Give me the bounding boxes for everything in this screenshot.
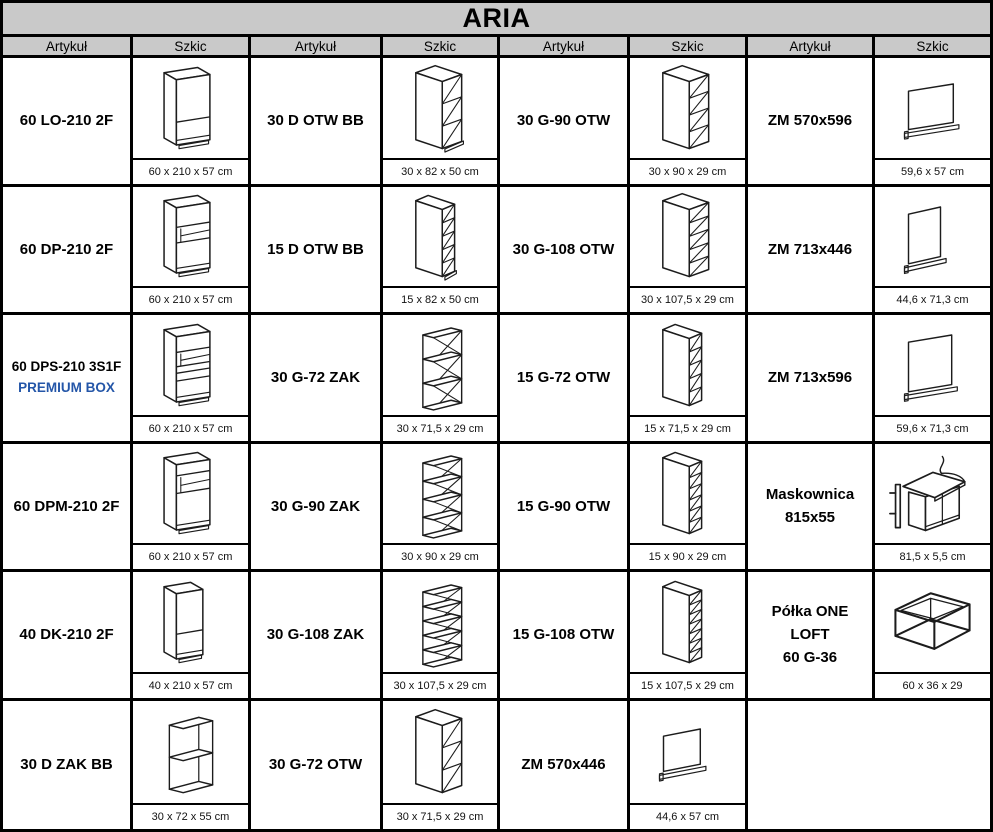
- dimension-label: 15 x 71,5 x 29 cm: [630, 415, 745, 441]
- article-cell: 60 DPM-210 2F: [3, 444, 133, 573]
- article-cell: 30 D ZAK BB: [3, 701, 133, 830]
- dimension-label: 60 x 210 x 57 cm: [133, 415, 248, 441]
- column-header-szkic: Szkic: [875, 37, 990, 58]
- sketch-cell: 30 x 72 x 55 cm: [133, 701, 251, 830]
- article-sublabel: 815x55: [785, 506, 835, 529]
- article-cell: 15 G-72 OTW: [500, 315, 630, 444]
- article-cell: 30 D OTW BB: [251, 58, 383, 187]
- sketch-panel-713x596-icon: [875, 315, 990, 415]
- sketch-maskownica-icon: [875, 444, 990, 544]
- sketch-cell: 15 x 82 x 50 cm: [383, 187, 500, 316]
- sketch-cell: 81,5 x 5,5 cm: [875, 444, 990, 573]
- article-cell: ZM 713x446: [748, 187, 875, 316]
- sketch-tall-cabinet-oven-drawers-icon: [133, 315, 248, 415]
- sketch-tall-cabinet-oven-icon: [133, 187, 248, 287]
- column-header-szkic: Szkic: [133, 37, 251, 58]
- column-header-artykul: Artykuł: [500, 37, 630, 58]
- sketch-panel-570x446-icon: [630, 701, 745, 804]
- article-label: 60 DPS-210 3S1F: [12, 357, 122, 378]
- sketch-wall-narrow-7-icon: [630, 572, 745, 672]
- article-cell: Półka ONE LOFT60 G-36: [748, 572, 875, 701]
- dimension-label: 15 x 90 x 29 cm: [630, 543, 745, 569]
- sketch-cell: 60 x 210 x 57 cm: [133, 58, 251, 187]
- dimension-label: 30 x 82 x 50 cm: [383, 158, 497, 184]
- article-label: ZM 570x446: [521, 753, 605, 776]
- column-header-artykul: Artykuł: [3, 37, 133, 58]
- dimension-label: 60 x 210 x 57 cm: [133, 543, 248, 569]
- article-label: ZM 570x596: [768, 109, 852, 132]
- dimension-label: 60 x 210 x 57 cm: [133, 158, 248, 184]
- article-label: ZM 713x446: [768, 238, 852, 261]
- sketch-cell: 30 x 71,5 x 29 cm: [383, 315, 500, 444]
- article-cell: 30 G-90 OTW: [500, 58, 630, 187]
- article-cell: 15 D OTW BB: [251, 187, 383, 316]
- sketch-tall-cabinet-2f-icon: [133, 58, 248, 158]
- sketch-corner-shelf-5-icon: [383, 444, 497, 544]
- sketch-cell: 44,6 x 71,3 cm: [875, 187, 990, 316]
- dimension-label: 30 x 90 x 29 cm: [630, 158, 745, 184]
- sketch-cell: 40 x 210 x 57 cm: [133, 572, 251, 701]
- product-catalog-table: ARIA ArtykułSzkicArtykułSzkicArtykułSzki…: [0, 0, 993, 832]
- sketch-cell: 30 x 90 x 29 cm: [630, 58, 748, 187]
- sketch-cell: 60 x 210 x 57 cm: [133, 187, 251, 316]
- article-sublabel: 60 G-36: [783, 646, 837, 669]
- dimension-label: 44,6 x 57 cm: [630, 803, 745, 829]
- article-cell: 15 G-108 OTW: [500, 572, 630, 701]
- article-cell: 30 G-72 ZAK: [251, 315, 383, 444]
- article-label: 30 D OTW BB: [267, 109, 364, 132]
- article-cell: 30 G-108 OTW: [500, 187, 630, 316]
- dimension-label: 60 x 36 x 29: [875, 672, 990, 698]
- article-cell: 60 LO-210 2F: [3, 58, 133, 187]
- column-header-artykul: Artykuł: [748, 37, 875, 58]
- sketch-cell: 30 x 107,5 x 29 cm: [630, 187, 748, 316]
- dimension-label: 30 x 90 x 29 cm: [383, 543, 497, 569]
- article-label: 30 G-90 OTW: [517, 109, 610, 132]
- article-label: 15 D OTW BB: [267, 238, 364, 261]
- article-label: 30 D ZAK BB: [20, 753, 113, 776]
- dimension-label: 59,6 x 71,3 cm: [875, 415, 990, 441]
- column-header-artykul: Artykuł: [251, 37, 383, 58]
- article-label: 30 G-108 OTW: [513, 238, 615, 261]
- sketch-corner-open-base-icon: [133, 701, 248, 804]
- article-cell: 15 G-90 OTW: [500, 444, 630, 573]
- sketch-corner-shelf-4-icon: [383, 315, 497, 415]
- article-label: 15 G-90 OTW: [517, 495, 610, 518]
- sketch-wall-open-4-icon: [630, 58, 745, 158]
- article-cell: 30 G-108 ZAK: [251, 572, 383, 701]
- sketch-cell: 59,6 x 57 cm: [875, 58, 990, 187]
- dimension-label: 40 x 210 x 57 cm: [133, 672, 248, 698]
- article-cell: ZM 570x446: [500, 701, 630, 830]
- dimension-label: 44,6 x 71,3 cm: [875, 286, 990, 312]
- article-label: 40 DK-210 2F: [19, 623, 113, 646]
- article-label: 60 LO-210 2F: [20, 109, 113, 132]
- article-cell: 30 G-72 OTW: [251, 701, 383, 830]
- sketch-cell: 60 x 36 x 29: [875, 572, 990, 701]
- dimension-label: 81,5 x 5,5 cm: [875, 543, 990, 569]
- sketch-cell: 30 x 90 x 29 cm: [383, 444, 500, 573]
- sketch-base-open-shelf-15-icon: [383, 187, 497, 287]
- sketch-wall-narrow-6-icon: [630, 444, 745, 544]
- article-label: 30 G-72 OTW: [269, 753, 362, 776]
- article-label: Półka ONE LOFT: [751, 600, 869, 647]
- sketch-base-open-shelf-30-icon: [383, 58, 497, 158]
- article-label: 30 G-90 ZAK: [271, 495, 360, 518]
- article-label: ZM 713x596: [768, 366, 852, 389]
- premium-box-label: PREMIUM BOX: [18, 378, 115, 399]
- article-label: 15 G-108 OTW: [513, 623, 615, 646]
- sketch-wall-open-3-icon: [383, 701, 497, 804]
- article-cell: 60 DPS-210 3S1FPREMIUM BOX: [3, 315, 133, 444]
- article-cell: ZM 570x596: [748, 58, 875, 187]
- article-label: 30 G-108 ZAK: [267, 623, 365, 646]
- article-cell: 60 DP-210 2F: [3, 187, 133, 316]
- sketch-loft-frame-icon: [875, 572, 990, 672]
- article-label: Maskownica: [766, 483, 854, 506]
- sketch-cell: 44,6 x 57 cm: [630, 701, 748, 830]
- sketch-cell: 30 x 107,5 x 29 cm: [383, 572, 500, 701]
- sketch-cell: 15 x 107,5 x 29 cm: [630, 572, 748, 701]
- page-title: ARIA: [3, 3, 990, 37]
- article-label: 60 DP-210 2F: [20, 238, 113, 261]
- sketch-wall-narrow-5-icon: [630, 315, 745, 415]
- sketch-cell: 60 x 210 x 57 cm: [133, 315, 251, 444]
- article-cell: 30 G-90 ZAK: [251, 444, 383, 573]
- dimension-label: 30 x 71,5 x 29 cm: [383, 803, 497, 829]
- dimension-label: 60 x 210 x 57 cm: [133, 286, 248, 312]
- dimension-label: 30 x 71,5 x 29 cm: [383, 415, 497, 441]
- column-header-szkic: Szkic: [630, 37, 748, 58]
- sketch-cell: 15 x 71,5 x 29 cm: [630, 315, 748, 444]
- sketch-cell: 30 x 82 x 50 cm: [383, 58, 500, 187]
- dimension-label: 59,6 x 57 cm: [875, 158, 990, 184]
- dimension-label: 30 x 72 x 55 cm: [133, 803, 248, 829]
- article-cell: ZM 713x596: [748, 315, 875, 444]
- empty-cell: [748, 701, 990, 830]
- sketch-tall-cabinet-narrow-2f-icon: [133, 572, 248, 672]
- article-cell: Maskownica815x55: [748, 444, 875, 573]
- sketch-cell: 60 x 210 x 57 cm: [133, 444, 251, 573]
- article-label: 15 G-72 OTW: [517, 366, 610, 389]
- sketch-cell: 59,6 x 71,3 cm: [875, 315, 990, 444]
- sketch-wall-open-5-icon: [630, 187, 745, 287]
- dimension-label: 30 x 107,5 x 29 cm: [383, 672, 497, 698]
- column-header-szkic: Szkic: [383, 37, 500, 58]
- sketch-cell: 15 x 90 x 29 cm: [630, 444, 748, 573]
- article-label: 30 G-72 ZAK: [271, 366, 360, 389]
- sketch-panel-713x446-icon: [875, 187, 990, 287]
- article-label: 60 DPM-210 2F: [14, 495, 120, 518]
- sketch-panel-570x596-icon: [875, 58, 990, 158]
- article-cell: 40 DK-210 2F: [3, 572, 133, 701]
- sketch-corner-shelf-6-icon: [383, 572, 497, 672]
- sketch-tall-cabinet-micro-icon: [133, 444, 248, 544]
- dimension-label: 15 x 107,5 x 29 cm: [630, 672, 745, 698]
- dimension-label: 15 x 82 x 50 cm: [383, 286, 497, 312]
- sketch-cell: 30 x 71,5 x 29 cm: [383, 701, 500, 830]
- dimension-label: 30 x 107,5 x 29 cm: [630, 286, 745, 312]
